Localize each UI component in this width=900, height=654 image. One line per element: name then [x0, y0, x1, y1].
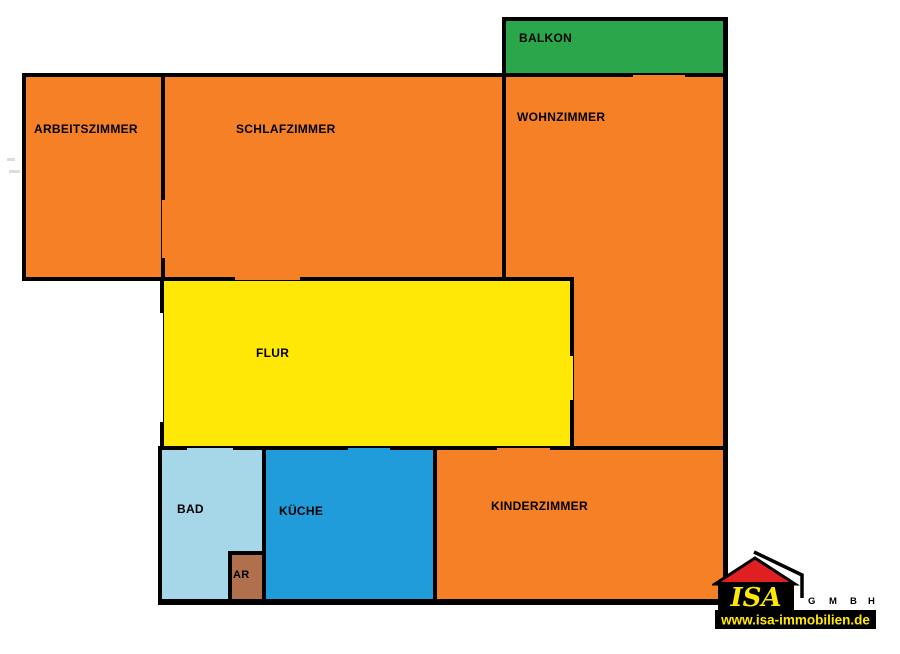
- room-balkon: [502, 17, 728, 77]
- bad-label: BAD: [177, 502, 204, 516]
- door-kinderzimmer-flur-opening: [497, 448, 550, 453]
- room-flur: [160, 277, 574, 453]
- schlafzimmer-label: SCHLAFZIMMER: [236, 122, 336, 136]
- logo-gmbh-letter: H: [868, 596, 875, 607]
- arbeitszimmer-label: ARBEITSZIMMER: [34, 122, 138, 136]
- room-kueche: [262, 446, 437, 605]
- door-balkon-opening: [633, 75, 685, 78]
- room-schlafzimmer: [161, 73, 506, 281]
- company-logo: ISA G M B H www.isa-immobilien.de: [712, 546, 882, 632]
- entrance-flur-opening: [160, 313, 163, 422]
- door-schlafzimmer-flur-opening: [235, 277, 300, 280]
- room-arbeitszimmer: [22, 73, 165, 281]
- ar-label: AR: [233, 569, 250, 581]
- door-wohnzimmer-kinderzimmer-opening: [620, 450, 670, 454]
- door-arbeitszimmer-schlafzimmer-opening: [162, 200, 166, 258]
- logo-gmbh-letter: B: [850, 596, 857, 607]
- door-flur-wohnzimmer-opening: [570, 356, 573, 400]
- logo-gmbh-letter: M: [829, 596, 837, 607]
- flur-label: FLUR: [256, 346, 289, 360]
- logo-roof: [715, 558, 795, 584]
- kueche-label: KÜCHE: [279, 504, 323, 518]
- floor-plan: ARBEITSZIMMER SCHLAFZIMMER WOHNZIMMER BA…: [0, 0, 900, 654]
- logo-gmbh-letter: G: [808, 596, 815, 607]
- room-kinderzimmer: [433, 446, 728, 605]
- scan-artifact: [9, 170, 20, 173]
- logo-website-text: www.isa-immobilien.de: [720, 613, 870, 628]
- scan-artifact: [7, 158, 15, 161]
- door-bad-opening: [187, 448, 233, 453]
- kinderzimmer-label: KINDERZIMMER: [491, 499, 588, 513]
- wohnzimmer-label: WOHNZIMMER: [517, 110, 605, 124]
- door-kueche-opening: [348, 448, 390, 453]
- logo-name-text: ISA: [729, 583, 781, 613]
- balkon-label: BALKON: [519, 31, 572, 45]
